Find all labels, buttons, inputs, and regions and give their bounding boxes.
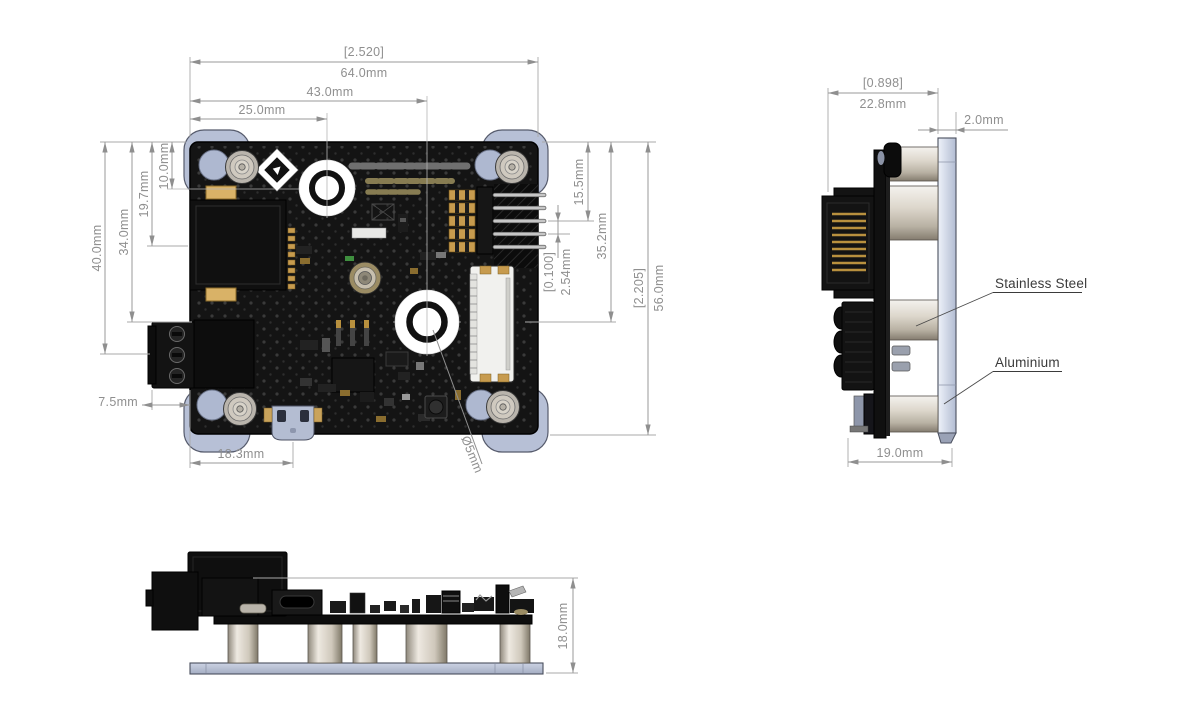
aluminium-plate [938,138,956,443]
ethernet-jack-side [822,188,874,298]
pcb-edge-shadow [886,152,890,436]
dim-text-hole2-offset: 43.0mm [307,85,354,99]
terminal-block [148,320,254,388]
standoff-front-3 [353,623,377,663]
dim-text-hole1-offset: 25.0mm [239,103,286,117]
dim-text-plate-thickness: 2.0mm [964,113,1004,127]
dim-plate-thickness: 2.0mm [918,113,1008,133]
corner-screw-bottom-right [466,390,520,424]
dim-left-34: 34.0mm [117,142,132,322]
standoff-front-2 [308,623,342,663]
dim-text-left-10: 10.0mm [157,143,171,190]
standoff-front-4 [406,623,447,663]
standoff-front-1 [228,623,258,663]
ffc-connector [470,266,514,382]
dc-power-jack [194,320,254,388]
dim-text-hole2-vertical: 35.2mm [595,213,609,260]
side-screw-1 [892,346,910,355]
dim-text-left-34: 34.0mm [117,209,131,256]
dim-text-overall-width-in: [2.520] [344,45,384,59]
white-label [352,228,386,238]
usb-side [850,394,874,434]
dim-overall-width: [2.520] 64.0mm [190,45,538,80]
standoffs-side [886,147,938,432]
pcb-edge-side [874,150,886,438]
dim-overall-depth: [0.898] 22.8mm [828,76,938,111]
dim-text-hole-diameter: Ø5mm [458,434,485,475]
dim-text-left-40: 40.0mm [90,225,104,272]
gold-pad-lower [206,288,236,301]
terminal-screw-slot-1 [172,332,182,336]
dim-text-standoff-depth: 19.0mm [877,446,924,460]
dim-hole1-offset: 25.0mm [190,103,327,119]
dim-text-pin-pitch-mm: 2.54mm [559,249,573,296]
dim-hole2-vertical: 35.2mm [595,142,611,322]
green-led [345,256,354,261]
front-view: 18.0mm [146,552,578,674]
micro-usb-connector [264,406,322,440]
side-screw-2 [892,362,910,371]
dim-text-usb-offset: 18.3mm [218,447,265,461]
dim-standoff-depth: 19.0mm [848,446,952,462]
dc-jack-front [146,572,198,630]
standoff-upper [886,186,938,240]
corner-screw-top-right [475,150,529,184]
base-plate-front [190,663,543,674]
usb-front [272,590,322,615]
terminal-block-side [834,302,874,390]
dim-text-overall-depth-mm: 22.8mm [860,97,907,111]
side-view: [0.898] 22.8mm 2.0mm Stainless Steel Alu… [822,76,1087,467]
ethernet-jack [190,200,295,290]
dim-text-front-height: 18.0mm [556,603,570,650]
dim-left-19-7: 19.7mm [137,142,152,246]
dim-text-overall-depth-in: [0.898] [863,76,903,90]
dim-text-terminal-overhang: 7.5mm [98,395,138,409]
terminal-screw-slot-2 [172,353,182,357]
dim-text-pin-row-offset: 15.5mm [572,159,586,206]
dim-terminal-overhang: 7.5mm [98,395,190,409]
small-components-front [330,585,534,615]
label-text-aluminium: Aluminium [995,355,1060,370]
dim-text-overall-height-mm: 56.0mm [652,265,666,312]
push-button [425,396,447,418]
standoff-front-5 [500,623,530,663]
dim-left-10: 10.0mm [157,142,172,189]
engineering-drawing: [2.520] 64.0mm 43.0mm 25.0mm 40.0mm 34.0… [0,0,1200,722]
label-text-stainless-steel: Stainless Steel [995,276,1087,291]
terminal-screw-slot-3 [172,374,182,378]
dim-left-40: 40.0mm [90,142,105,354]
dim-hole2-offset: 43.0mm [190,85,427,101]
inductor-front [240,604,266,613]
dim-pin-pitch: [0.100] 2.54mm [542,205,573,295]
dim-text-overall-height-in: [2.205] [632,268,646,308]
dim-text-left-19-7: 19.7mm [137,171,151,218]
standoff-lower [886,396,938,432]
dim-overall-height: [2.205] 56.0mm [632,142,666,435]
drawing-canvas: [2.520] 64.0mm 43.0mm 25.0mm 40.0mm 34.0… [0,0,1200,722]
gold-pad-upper [206,186,236,199]
dim-front-height: 18.0mm [556,578,573,673]
label-aluminium: Aluminium [944,355,1062,404]
dim-text-overall-width-mm: 64.0mm [341,66,388,80]
center-standoff-screw [349,262,381,294]
dim-pin-row-offset: 15.5mm [572,142,588,221]
dim-text-pin-pitch-in: [0.100] [542,252,556,292]
top-view: [2.520] 64.0mm 43.0mm 25.0mm 40.0mm 34.0… [90,45,666,475]
standoffs-front [228,623,530,663]
